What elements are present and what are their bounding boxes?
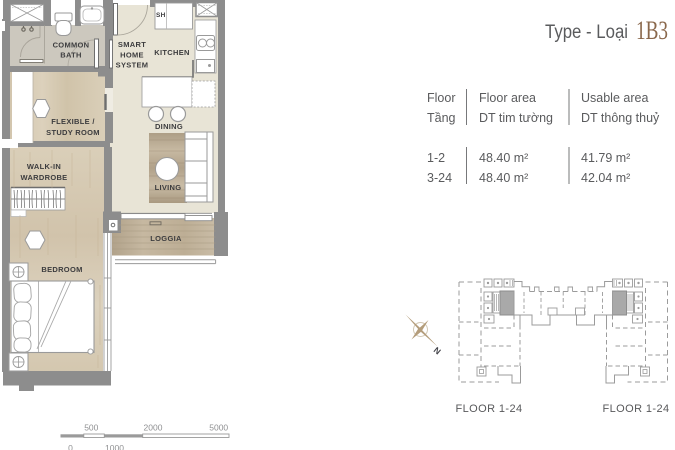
svg-text:48.40 m²: 48.40 m² bbox=[479, 171, 528, 185]
svg-text:DT thông thuỷ: DT thông thuỷ bbox=[581, 111, 660, 125]
svg-text:5000: 5000 bbox=[209, 423, 228, 433]
svg-text:3-24: 3-24 bbox=[427, 171, 452, 185]
svg-text:DINING: DINING bbox=[155, 122, 183, 131]
svg-text:FLOOR 1-24: FLOOR 1-24 bbox=[603, 403, 670, 415]
svg-text:BATH: BATH bbox=[60, 51, 81, 60]
svg-text:500: 500 bbox=[84, 423, 98, 433]
svg-text:Floor: Floor bbox=[427, 91, 455, 105]
svg-text:SMART: SMART bbox=[118, 40, 146, 49]
svg-text:1-2: 1-2 bbox=[427, 151, 445, 165]
svg-text:42.04 m²: 42.04 m² bbox=[581, 171, 630, 185]
svg-text:2000: 2000 bbox=[144, 423, 163, 433]
svg-text:41.79 m²: 41.79 m² bbox=[581, 151, 630, 165]
svg-text:KITCHEN: KITCHEN bbox=[154, 48, 189, 57]
svg-text:SH: SH bbox=[156, 12, 166, 19]
svg-text:WALK-IN: WALK-IN bbox=[27, 162, 61, 171]
svg-text:48.40 m²: 48.40 m² bbox=[479, 151, 528, 165]
svg-text:LIVING: LIVING bbox=[155, 183, 182, 192]
svg-text:SYSTEM: SYSTEM bbox=[116, 61, 149, 70]
svg-text:N: N bbox=[432, 345, 443, 357]
svg-text:1B3: 1B3 bbox=[636, 16, 668, 45]
svg-text:COMMON: COMMON bbox=[53, 41, 90, 50]
svg-text:FLOOR 1-24: FLOOR 1-24 bbox=[456, 403, 523, 415]
svg-text:Usable area: Usable area bbox=[581, 91, 648, 105]
svg-text:BEDROOM: BEDROOM bbox=[41, 265, 82, 274]
svg-text:0: 0 bbox=[68, 443, 73, 450]
svg-text:FLEXIBLE /: FLEXIBLE / bbox=[51, 117, 95, 126]
svg-text:Floor area: Floor area bbox=[479, 91, 536, 105]
svg-text:WARDROBE: WARDROBE bbox=[21, 173, 68, 182]
svg-text:1000: 1000 bbox=[105, 443, 124, 450]
svg-text:Type - Loại: Type - Loại bbox=[545, 22, 628, 43]
svg-text:DT tim tường: DT tim tường bbox=[479, 111, 553, 125]
svg-text:Tầng: Tầng bbox=[427, 111, 456, 125]
svg-text:STUDY ROOM: STUDY ROOM bbox=[46, 128, 100, 137]
svg-text:LOGGIA: LOGGIA bbox=[150, 234, 182, 243]
svg-text:HOME: HOME bbox=[120, 51, 144, 60]
